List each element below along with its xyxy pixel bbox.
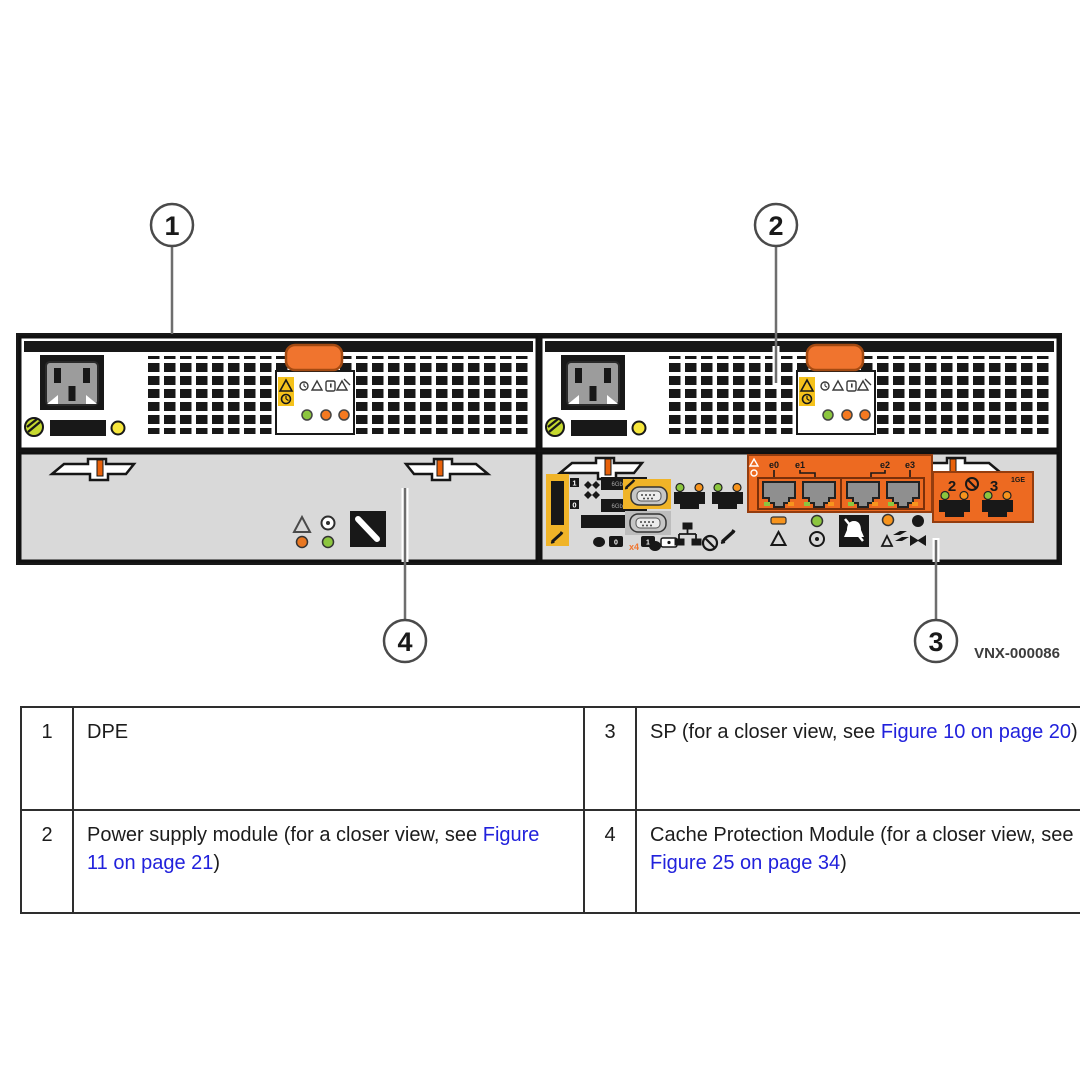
legend-text: Cache Protection Module (for a closer vi…	[650, 824, 1074, 846]
legend-text: DPE	[87, 721, 128, 743]
legend-num-1: 1	[21, 707, 73, 810]
legend-text: Power supply module (for a closer view, …	[87, 824, 483, 846]
eth-e0-label: e0	[769, 460, 779, 470]
callout-3-number: 3	[928, 627, 943, 657]
fault-led	[883, 515, 894, 526]
figure-link[interactable]: Figure 10 on page 20	[881, 721, 1071, 743]
sas-port-1-label: 1	[572, 479, 576, 488]
legend-text: SP (for a closer view, see	[650, 721, 881, 743]
eth-e3-label: e3	[905, 460, 915, 470]
legend-num-4: 4	[584, 810, 636, 913]
ge-port-2-label: 2	[948, 478, 956, 495]
dpe-chassis: 1 0 6Gb SAS 6Gb SAS 0 x4 1	[16, 333, 1062, 565]
db9-connector	[630, 514, 666, 532]
callout-1: 1	[151, 204, 193, 334]
legend-desc-power-supply: Power supply module (for a closer view, …	[73, 810, 584, 913]
power-supply-b	[541, 337, 1058, 449]
legend-desc-dpe: DPE	[73, 707, 584, 810]
storage-processor: 1 0 6Gb SAS 6Gb SAS 0 x4 1	[541, 453, 1058, 561]
power-supply-a	[20, 337, 537, 449]
status-dot-icon	[912, 515, 924, 527]
legend-text: )	[213, 852, 220, 874]
table-row: 1 DPE 3 SP (for a closer view, see Figur…	[21, 707, 1080, 810]
table-row: 2 Power supply module (for a closer view…	[21, 810, 1080, 913]
figure-id: VNX-000086	[974, 645, 1060, 662]
cache-protection-module	[20, 453, 537, 561]
db9-connector	[631, 487, 667, 505]
legend-num-2: 2	[21, 810, 73, 913]
fault-led	[771, 517, 786, 524]
eth-e2-label: e2	[880, 460, 890, 470]
callout-2-number: 2	[768, 211, 783, 241]
legend-text: )	[1071, 721, 1078, 743]
service-serial-port	[623, 479, 671, 509]
ge-port-panel: 2 3 1GE	[933, 472, 1033, 522]
fault-led	[297, 537, 308, 548]
sas-conn-0-label: 0	[614, 540, 618, 547]
sas-port-0-label: 0	[572, 501, 576, 510]
dpe-rear-diagram: 1 0 6Gb SAS 6Gb SAS 0 x4 1	[0, 0, 1080, 700]
legend-desc-cache-protection: Cache Protection Module (for a closer vi…	[636, 810, 1080, 913]
ethernet-panel: e0 e1 e2 e3	[748, 455, 932, 512]
eth-e1-label: e1	[795, 460, 805, 470]
legend-desc-sp: SP (for a closer view, see Figure 10 on …	[636, 707, 1080, 810]
ge-speed-label: 1GE	[1011, 477, 1025, 484]
power-led	[812, 516, 823, 527]
power-led	[323, 537, 334, 548]
figure-link[interactable]: Figure 25 on page 34	[650, 852, 840, 874]
legend-text: )	[840, 852, 847, 874]
legend-table: 1 DPE 3 SP (for a closer view, see Figur…	[20, 706, 1080, 914]
callout-4-number: 4	[397, 627, 412, 657]
callout-1-number: 1	[164, 211, 179, 241]
sas-lane-label: x4	[629, 542, 639, 552]
sp-pull-strip	[546, 474, 569, 546]
legend-num-3: 3	[584, 707, 636, 810]
